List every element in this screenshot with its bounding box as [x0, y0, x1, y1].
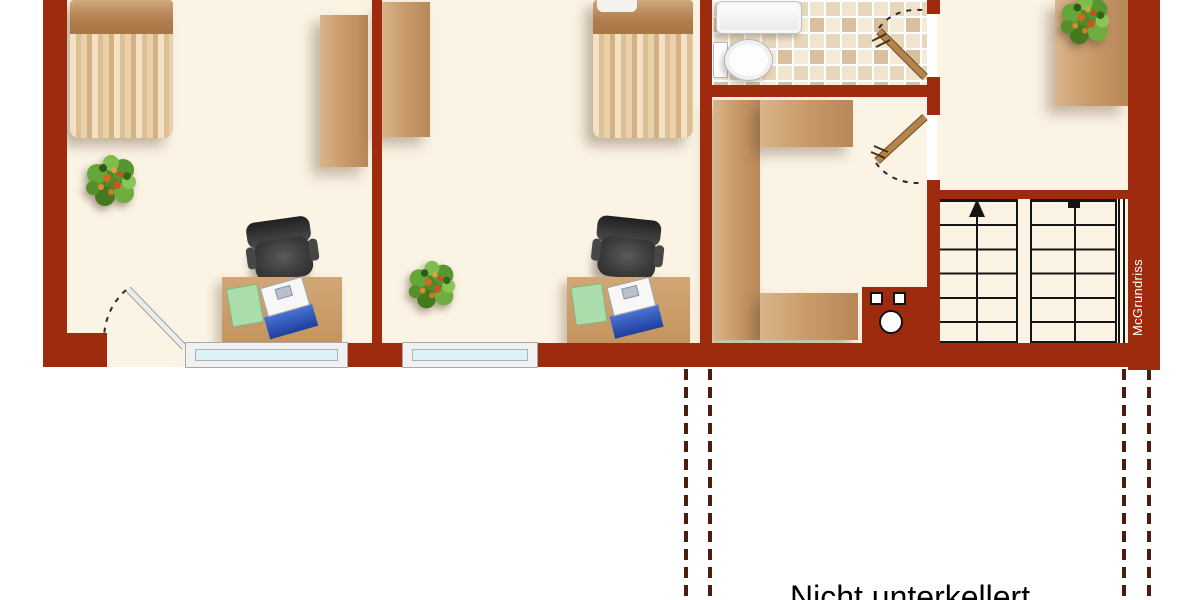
bed-blanket: [593, 34, 693, 138]
stair-walk-line: [1074, 199, 1076, 343]
basement-outline-dash: [684, 369, 688, 600]
plant-icon: [82, 152, 140, 212]
bed-headboard: [70, 0, 173, 34]
shower-tray: [716, 1, 802, 34]
window-glass: [412, 349, 528, 361]
basement-outline-dash: [708, 369, 712, 600]
wardrobe: [320, 15, 368, 167]
exterior-wall-left-foot: [43, 333, 107, 367]
door-opening-floor: [107, 343, 185, 367]
hall-cabinet-left: [713, 100, 760, 340]
bathroom-right-wall-segment: [927, 0, 940, 14]
stair-room-top-wall: [927, 190, 1128, 199]
bed-blanket: [70, 34, 173, 138]
window: [402, 342, 538, 368]
toilet-bowl: [724, 39, 773, 81]
bed: [70, 0, 173, 138]
chair-seat: [252, 235, 315, 283]
office-chair: [242, 214, 322, 285]
chair-seat: [596, 235, 658, 281]
bed: [593, 0, 693, 138]
stair-rail: [1118, 198, 1125, 343]
exterior-wall-left: [43, 0, 67, 343]
window: [185, 342, 348, 368]
window-pier: [348, 343, 404, 367]
hall-cabinet-bottom: [760, 293, 858, 340]
desk-pad: [226, 284, 264, 328]
shaft-symbol-circle: [879, 310, 903, 334]
watermark-text: McGrundriss: [1130, 250, 1158, 346]
interior-wall: [372, 0, 382, 343]
hall-cabinet-top: [760, 100, 853, 147]
exterior-wall-bottom: [538, 343, 1128, 367]
window-glass: [195, 349, 338, 361]
stair-up-arrow-icon: [969, 199, 985, 217]
hall-right-wall-segment: [927, 180, 940, 343]
basement-outline-dash: [1147, 369, 1151, 600]
wardrobe: [381, 2, 430, 137]
desk-pad: [570, 283, 607, 326]
shaft-symbol-square: [893, 292, 906, 305]
plant-icon: [406, 257, 458, 315]
basement-note: Nicht unterkellert: [790, 579, 1030, 600]
plant-icon: [1056, 0, 1114, 50]
office-chair: [589, 214, 667, 283]
pillow: [597, 0, 637, 12]
basement-outline-dash: [1122, 369, 1126, 600]
interior-wall: [700, 0, 712, 343]
stair-walk-line: [976, 199, 978, 343]
floor-plan: Nicht unterkellert McGrundriss: [0, 0, 1200, 600]
bathroom-bottom-wall: [712, 85, 940, 97]
shaft-symbol-square: [870, 292, 883, 305]
